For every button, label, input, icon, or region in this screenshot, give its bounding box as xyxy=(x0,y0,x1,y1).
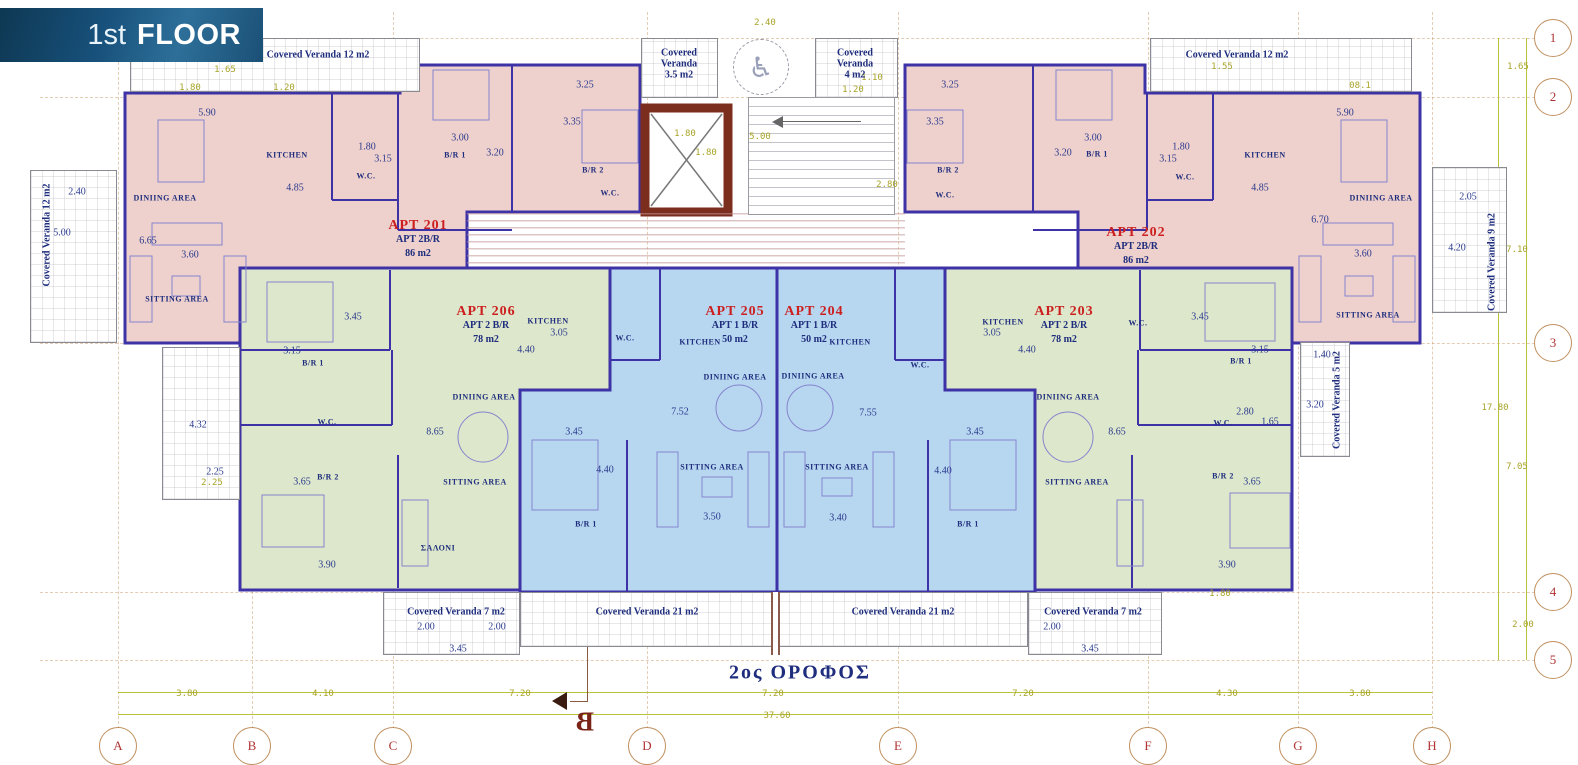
dimension-label: 3.35 xyxy=(926,117,944,128)
dimension-label: 8.65 xyxy=(1108,427,1126,438)
dimension-label: 1.80 xyxy=(358,142,376,153)
veranda-label: Covered Veranda 21 m2 xyxy=(596,607,699,618)
section-marker-label: B xyxy=(576,707,594,738)
veranda-bottom-21m2-right xyxy=(777,592,1028,647)
section-line-stub xyxy=(570,701,588,702)
dimension-label: 1.65 xyxy=(1507,62,1529,72)
room-label: W.C. xyxy=(1128,319,1147,328)
dimension-label: 2.40 xyxy=(754,18,776,28)
dimension-label: 4.40 xyxy=(934,466,952,477)
dimension-label: 3.20 xyxy=(486,148,504,159)
room-label: B/R 1 xyxy=(1086,150,1108,159)
veranda-label: Covered Veranda 12 m2 xyxy=(1186,50,1289,61)
dimension-label: 3.40 xyxy=(829,513,847,524)
room-label: SITTING AREA xyxy=(1336,311,1400,320)
dimension-label: 3.05 xyxy=(550,328,568,339)
apartment-label-apt-201: APT 201APT 2B/R86 m2 xyxy=(388,219,447,261)
dimension-label: 3.45 xyxy=(1081,644,1099,655)
room-label: DINIING AREA xyxy=(703,373,766,382)
dimension-label: 1.20 xyxy=(273,83,295,93)
floor-title-greek: 2ος ΟΡΟΦΟΣ xyxy=(729,662,871,685)
dimension-label: 4.40 xyxy=(596,465,614,476)
grid-bubble-D: D xyxy=(628,727,666,765)
staircase xyxy=(748,97,895,215)
party-wall xyxy=(771,592,780,655)
grid-bubble-3: 3 xyxy=(1534,324,1572,362)
room-label: DINIING AREA xyxy=(1349,194,1412,203)
dimension-label: 3.20 xyxy=(1306,400,1324,411)
floor-plan-page: { "banner": { "prefix": "1st", "word": "… xyxy=(0,0,1578,758)
grid-bubble-C: C xyxy=(374,727,412,765)
dimension-label: 7.52 xyxy=(671,407,689,418)
dimension-label: 7.55 xyxy=(859,408,877,419)
room-label: SITTING AREA xyxy=(443,478,507,487)
dimension-label: 3.45 xyxy=(1191,312,1209,323)
dimension-label: 3.15 xyxy=(374,154,392,165)
room-label: W.C. xyxy=(600,189,619,198)
dimension-label: 3.35 xyxy=(563,117,581,128)
dimension-label: 1.65 xyxy=(1261,417,1279,428)
veranda-label: Covered Veranda 21 m2 xyxy=(852,607,955,618)
dimension-label: 3.65 xyxy=(293,477,311,488)
right-dim-line-1 xyxy=(1498,38,1499,660)
veranda-label: Covered Veranda 12 m2 xyxy=(42,184,53,287)
dimension-label: 4.30 xyxy=(1216,689,1238,699)
section-arrow xyxy=(552,692,567,710)
room-label: W.C. xyxy=(317,418,336,427)
room-label: W.C. xyxy=(910,361,929,370)
grid-bubble-5: 5 xyxy=(1534,641,1572,679)
dimension-label: 1.80 xyxy=(179,83,201,93)
grid-bubble-4: 4 xyxy=(1534,573,1572,611)
dimension-label: 3.80 xyxy=(176,689,198,699)
landing-hatch xyxy=(467,213,905,268)
dimension-label: 3.45 xyxy=(966,427,984,438)
dimension-label: 1.80 xyxy=(1209,589,1231,599)
room-label: B/R 1 xyxy=(957,520,979,529)
room-label: DINIING AREA xyxy=(781,372,844,381)
dimension-label: 5.00 xyxy=(749,132,771,142)
room-label: B/R 2 xyxy=(582,166,604,175)
room-label: KITCHEN xyxy=(982,318,1023,327)
room-label: ΣΑΛΟΝΙ xyxy=(421,544,455,553)
room-label: W.C. xyxy=(1175,173,1194,182)
veranda-label: CoveredVeranda4 m2 xyxy=(837,48,873,81)
room-label: B/R 1 xyxy=(444,151,466,160)
veranda-label: Covered Veranda 7 m2 xyxy=(407,607,505,618)
dimension-label: 3.25 xyxy=(576,80,594,91)
dimension-label: 1.65 xyxy=(214,65,236,75)
dimension-label: 1.80 xyxy=(1172,142,1190,153)
dimension-label: 2.00 xyxy=(1512,620,1534,630)
veranda-label: Covered Veranda 5 m2 xyxy=(1332,351,1343,449)
grid-bubble-A: A xyxy=(99,727,137,765)
dimension-label: 3.25 xyxy=(941,80,959,91)
dimension-label: 4.32 xyxy=(189,420,207,431)
dimension-label: 1.20 xyxy=(842,85,864,95)
room-label: B/R 2 xyxy=(1212,472,1234,481)
dimension-label: 37.60 xyxy=(763,711,790,721)
veranda-bottom-21m2-left xyxy=(520,592,777,647)
dimension-label: 3.65 xyxy=(1243,477,1261,488)
dimension-label: 4.85 xyxy=(1251,183,1269,194)
dimension-label: 3.45 xyxy=(344,312,362,323)
floor-number: 1st xyxy=(87,19,126,52)
dimension-label: 5.90 xyxy=(198,108,216,119)
dimension-label: 2.00 xyxy=(1043,622,1061,633)
dimension-label: 3.80 xyxy=(1349,689,1371,699)
dimension-label: 4.40 xyxy=(1018,345,1036,356)
dimension-label: 2.40 xyxy=(68,187,86,198)
dimension-label: 4.20 xyxy=(1448,243,1466,254)
dimension-label: 3.00 xyxy=(451,133,469,144)
grid-bubble-2: 2 xyxy=(1534,78,1572,116)
apartment-label-apt-203: APT 203APT 2 B/R78 m2 xyxy=(1034,305,1093,347)
apartment-label-apt-205: APT 205APT 1 B/R50 m2 xyxy=(705,305,764,347)
dimension-label: 4.40 xyxy=(517,345,535,356)
dimension-label: 3.50 xyxy=(703,512,721,523)
dimension-label: 2.80 xyxy=(1236,407,1254,418)
right-dim-line-2 xyxy=(1526,38,1527,660)
wheelchair-symbol: ♿ xyxy=(733,39,789,95)
room-label: B/R 1 xyxy=(1230,357,1252,366)
dimension-label: 3.45 xyxy=(565,427,583,438)
dimension-label: 3.60 xyxy=(181,250,199,261)
veranda-label: Covered Veranda 9 m2 xyxy=(1487,213,1498,311)
grid-bubble-F: F xyxy=(1129,727,1167,765)
apartment-label-apt-202: APT 202APT 2B/R86 m2 xyxy=(1106,226,1165,268)
dimension-label: 3.00 xyxy=(1084,133,1102,144)
dimension-label: 5.90 xyxy=(1336,108,1354,119)
dimension-label: 1.55 xyxy=(1211,62,1233,72)
grid-bubble-1: 1 xyxy=(1534,19,1572,57)
dimension-label: 3.90 xyxy=(1218,560,1236,571)
room-label: B/R 1 xyxy=(575,520,597,529)
room-label: W.C. xyxy=(356,172,375,181)
dimension-label: 1.80 xyxy=(674,129,696,139)
dimension-label: 7.05 xyxy=(1506,462,1528,472)
room-label: DINIING AREA xyxy=(133,194,196,203)
apartment-label-apt-206: APT 206APT 2 B/R78 m2 xyxy=(456,305,515,347)
grid-bubble-B: B xyxy=(233,727,271,765)
dimension-label: 08.1 xyxy=(1349,81,1371,91)
dimension-label: 5.00 xyxy=(53,228,71,239)
dimension-label: 2.25 xyxy=(201,478,223,488)
stair-arrow-line xyxy=(783,121,861,122)
floor-banner: 1st FLOOR xyxy=(0,8,263,62)
elevator-shaft xyxy=(645,108,728,212)
veranda-label: Covered Veranda 12 m2 xyxy=(267,50,370,61)
dimension-label: 2.05 xyxy=(1459,192,1477,203)
dimension-label: 6.65 xyxy=(139,236,157,247)
dimension-label: 4.85 xyxy=(286,183,304,194)
dimension-label: 2.80 xyxy=(876,180,898,190)
dimension-label: 2.00 xyxy=(488,622,506,633)
dimension-label: 2.25 xyxy=(206,467,224,478)
room-label: DINIING AREA xyxy=(452,393,515,402)
dimension-label: 3.15 xyxy=(283,346,301,357)
room-label: B/R 2 xyxy=(937,166,959,175)
dimension-label: 7.20 xyxy=(509,689,531,699)
veranda-label: Covered Veranda 7 m2 xyxy=(1044,607,1142,618)
dimension-label: 17.80 xyxy=(1481,403,1508,413)
dimension-label: 3.45 xyxy=(449,644,467,655)
apartment-label-apt-204: APT 204APT 1 B/R50 m2 xyxy=(784,305,843,347)
dimension-label: 7.20 xyxy=(762,689,784,699)
dimension-label: 2.00 xyxy=(417,622,435,633)
dimension-label: 7.20 xyxy=(1012,689,1034,699)
room-label: W.C. xyxy=(615,334,634,343)
grid-bubble-G: G xyxy=(1279,727,1317,765)
room-label: SITTING AREA xyxy=(145,295,209,304)
stair-direction-arrow xyxy=(772,116,783,128)
grid-bubble-E: E xyxy=(879,727,917,765)
dimension-label: 3.15 xyxy=(1251,345,1269,356)
room-label: B/R 2 xyxy=(317,473,339,482)
dimension-label: 7.10 xyxy=(1506,245,1528,255)
dimension-label: 4.10 xyxy=(312,689,334,699)
dimension-label: 3.15 xyxy=(1159,154,1177,165)
dimension-label: 3.05 xyxy=(983,328,1001,339)
room-label: KITCHEN xyxy=(527,317,568,326)
room-label: KITCHEN xyxy=(266,151,307,160)
room-label: SITTING AREA xyxy=(805,463,869,472)
room-label: KITCHEN xyxy=(1244,151,1285,160)
veranda-label: CoveredVeranda3.5 m2 xyxy=(661,48,697,81)
room-label: B/R 1 xyxy=(302,359,324,368)
room-label: SITTING AREA xyxy=(1045,478,1109,487)
room-label: SITTING AREA xyxy=(680,463,744,472)
room-label: W.C. xyxy=(1213,419,1232,428)
dimension-label: 3.60 xyxy=(1354,249,1372,260)
dimension-label: 1.40 xyxy=(1313,350,1331,361)
dimension-label: 8.65 xyxy=(426,427,444,438)
dimension-label: 3.20 xyxy=(1054,148,1072,159)
floor-word: FLOOR xyxy=(137,19,241,52)
veranda-top-right xyxy=(1150,38,1412,92)
dimension-label: 6.70 xyxy=(1311,215,1329,226)
dimension-label: 3.90 xyxy=(318,560,336,571)
dimension-label: 1.80 xyxy=(695,148,717,158)
room-label: DINIING AREA xyxy=(1036,393,1099,402)
room-label: W.C. xyxy=(935,191,954,200)
grid-bubble-H: H xyxy=(1413,727,1451,765)
